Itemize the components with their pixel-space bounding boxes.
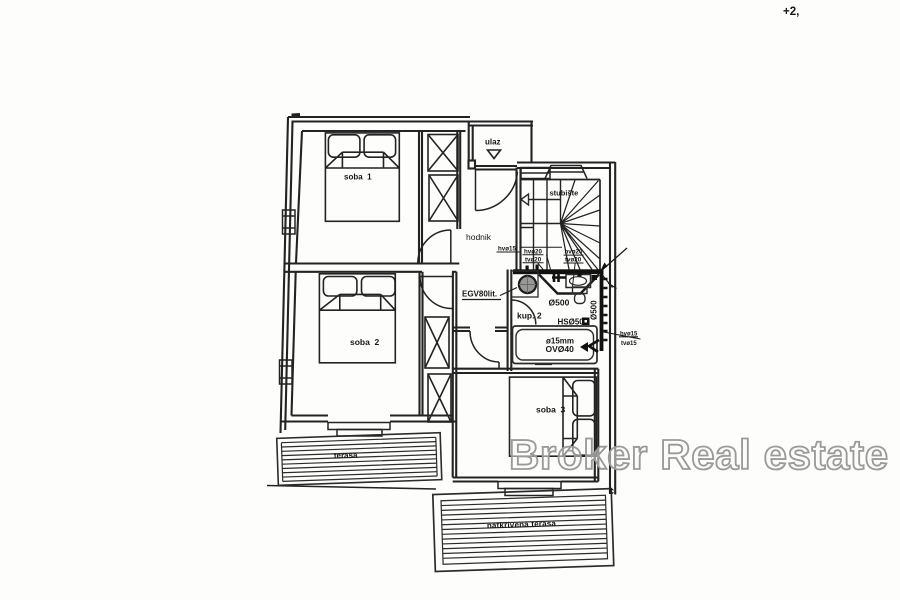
svg-text:ulaz: ulaz — [485, 138, 501, 147]
svg-text:Broker Real estate: Broker Real estate — [509, 431, 889, 478]
svg-text:EGV80lit.: EGV80lit. — [462, 290, 497, 299]
svg-text:hvø15: hvø15 — [498, 245, 516, 252]
svg-text:Ø500: Ø500 — [590, 300, 599, 320]
svg-text:+2,: +2, — [783, 6, 799, 18]
svg-text:OVØ40: OVØ40 — [546, 344, 575, 354]
svg-text:Ø500: Ø500 — [549, 298, 570, 308]
svg-text:terasa: terasa — [334, 451, 358, 461]
svg-text:hodnik: hodnik — [466, 232, 492, 242]
svg-text:c: c — [609, 486, 615, 497]
svg-text:soba 3: soba 3 — [536, 405, 566, 415]
svg-text:HSØ50: HSØ50 — [558, 318, 585, 327]
svg-text:soba 2: soba 2 — [350, 337, 380, 347]
svg-text:kup. 2: kup. 2 — [517, 311, 542, 321]
svg-text:stubište: stubište — [550, 189, 579, 198]
svg-text:hvø20: hvø20 — [565, 249, 583, 256]
svg-text:tvø15: tvø15 — [621, 341, 637, 347]
svg-text:soba 1: soba 1 — [344, 173, 372, 182]
